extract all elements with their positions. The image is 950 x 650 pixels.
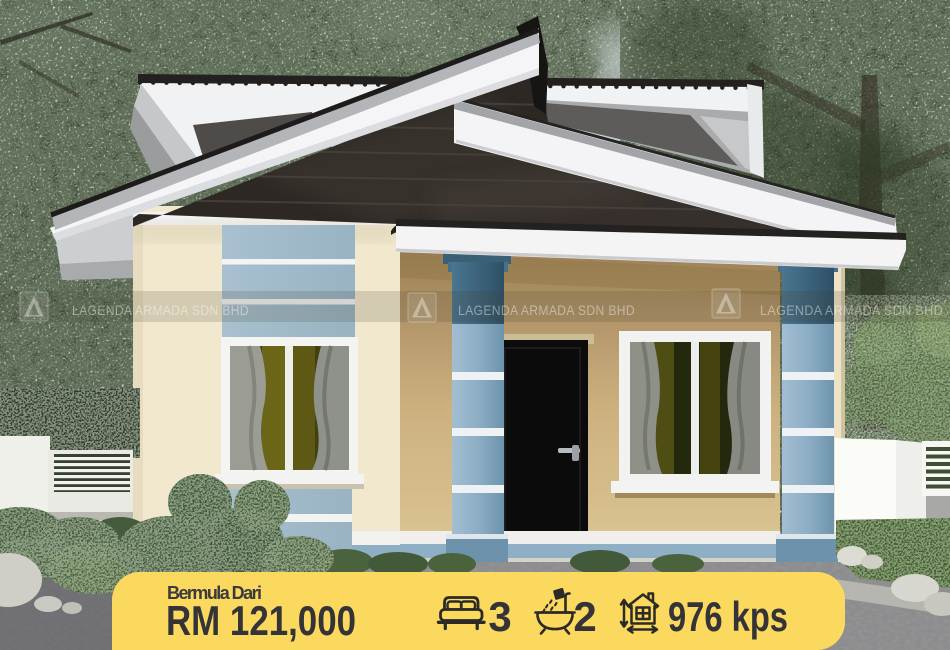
- svg-text:3: 3: [488, 593, 511, 640]
- svg-text:LAGENDA ARMADA SDN BHD: LAGENDA ARMADA SDN BHD: [72, 303, 249, 318]
- svg-text:LAGENDA ARMADA SDN BHD: LAGENDA ARMADA SDN BHD: [458, 303, 635, 318]
- svg-text:976 kps: 976 kps: [668, 593, 788, 640]
- svg-text:2: 2: [573, 593, 596, 640]
- svg-text:LAGENDA ARMADA SDN BHD: LAGENDA ARMADA SDN BHD: [760, 303, 943, 318]
- svg-text:RM 121,000: RM 121,000: [166, 597, 356, 644]
